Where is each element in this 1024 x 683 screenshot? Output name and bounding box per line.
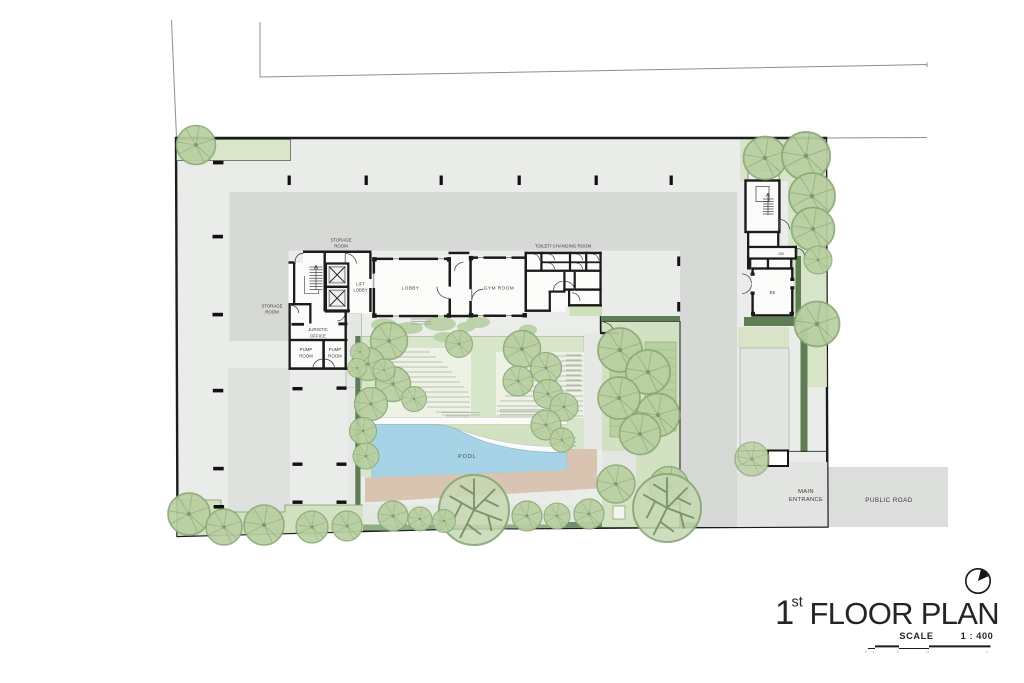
svg-text:EE: EE	[770, 290, 776, 295]
svg-text:MAIN: MAIN	[798, 489, 814, 495]
svg-text:ROOM: ROOM	[328, 353, 342, 358]
svg-text:10: 10	[926, 650, 930, 654]
svg-text:PUBLIC ROAD: PUBLIC ROAD	[865, 497, 912, 504]
svg-text:OFFICE: OFFICE	[310, 333, 326, 338]
svg-text:PUMP: PUMP	[329, 347, 342, 352]
svg-text:LIFT: LIFT	[356, 282, 365, 287]
svg-text:STORAGE: STORAGE	[262, 304, 283, 309]
svg-text:ROOM: ROOM	[334, 244, 348, 249]
svg-text:TOILET/ CHANGING ROOM: TOILET/ CHANGING ROOM	[535, 244, 592, 249]
svg-text:ROOM: ROOM	[265, 310, 279, 315]
svg-text:st: st	[792, 595, 803, 611]
svg-text:STORAGE: STORAGE	[331, 238, 352, 243]
svg-text:JURISTIC: JURISTIC	[308, 327, 328, 332]
svg-text:ENTRANCE: ENTRANCE	[789, 497, 823, 503]
svg-text:LOBBY: LOBBY	[353, 288, 367, 293]
svg-text:GB: GB	[778, 252, 784, 256]
svg-text:FLOOR PLAN: FLOOR PLAN	[810, 596, 999, 631]
svg-text:1 : 400: 1 : 400	[961, 631, 994, 641]
svg-text:LOBBY: LOBBY	[402, 286, 420, 292]
svg-text:SCALE: SCALE	[899, 631, 933, 641]
svg-text:PUMP: PUMP	[300, 347, 313, 352]
svg-text:GYM ROOM: GYM ROOM	[484, 286, 514, 292]
svg-text:POOL: POOL	[458, 454, 476, 460]
svg-text:ROOM: ROOM	[299, 353, 313, 358]
